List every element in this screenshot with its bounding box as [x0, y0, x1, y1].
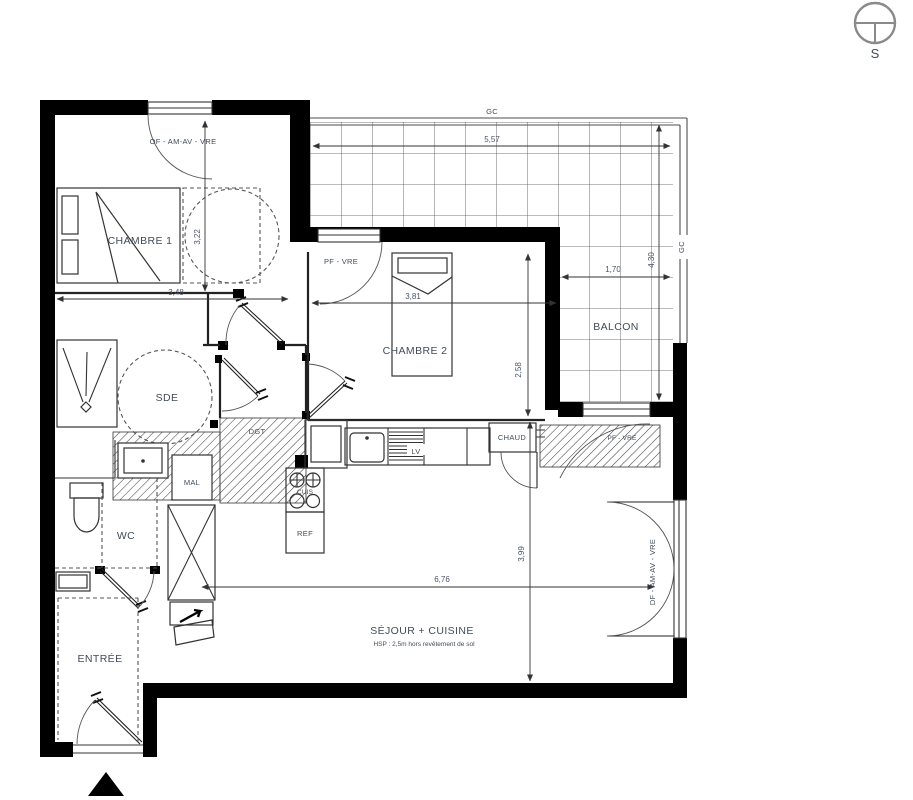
tall-unit-inner — [311, 426, 341, 462]
balcony-door-tiled-floor — [540, 425, 660, 467]
chambre1-label: CHAMBRE 1 — [108, 235, 173, 247]
wall-chambre2-east — [545, 242, 560, 410]
dim-chambre1-width: 3,48 — [168, 288, 184, 297]
wall-balcony-south-b — [650, 402, 673, 417]
chambre2-window-label: PF - VRE — [324, 257, 358, 266]
dim-sejour-width: 6,76 — [434, 575, 450, 584]
dim-balcon-width: 5,57 — [484, 135, 500, 144]
balcony — [310, 118, 687, 402]
wall-kitchen-nib — [295, 455, 308, 468]
pillow — [62, 240, 78, 274]
hall-door-leaf — [242, 303, 284, 342]
chambre2-door-leaf — [308, 383, 347, 419]
french-door-swing-bottom — [607, 569, 674, 636]
dim-chambre1-depth: 3,22 — [193, 229, 202, 245]
burner — [307, 495, 320, 508]
floor-plan-drawing: CHAMBRE 1 CHAMBRE 2 SDE WC ENTRÉE SÉJOUR… — [0, 0, 913, 800]
entree-label: ENTRÉE — [78, 652, 123, 665]
washbasin-drain — [141, 459, 145, 463]
hall-door-swing — [226, 305, 240, 345]
entrance-door-leaf — [97, 698, 142, 742]
dim-sejour-depth: 3,99 — [517, 546, 526, 562]
chambre2-door-leaf — [306, 381, 345, 417]
sde-door-leaf — [222, 360, 258, 396]
toilet-bowl — [74, 498, 99, 532]
entree-items — [56, 505, 215, 796]
chaud-door-swing — [501, 452, 537, 488]
dgt-label: DGT — [249, 427, 266, 436]
chambre2-door-swing — [308, 364, 345, 381]
wall-balcony-west — [290, 100, 310, 242]
sde-door-tip — [256, 389, 268, 400]
wc-door-leaf — [102, 569, 140, 606]
direction-arrow — [180, 610, 200, 622]
guardrail-right-label: GC — [677, 241, 686, 253]
floor-plan: CHAMBRE 1 CHAMBRE 2 SDE WC ENTRÉE SÉJOUR… — [0, 0, 913, 800]
sde-door-swing — [222, 396, 258, 411]
dim-chambre2-width: 3,81 — [405, 292, 421, 301]
jamb — [210, 420, 218, 428]
wall-entree-bottom — [40, 742, 73, 757]
chambre2-door-tip — [343, 377, 355, 389]
jamb — [215, 355, 222, 363]
closet-cross — [168, 505, 215, 600]
bed-fold — [392, 276, 452, 294]
stove-label: CUIS — [297, 489, 314, 496]
guardrail-top-label: GC — [486, 107, 498, 116]
shelf-tilted — [174, 620, 214, 645]
wc-door-leaf — [100, 571, 138, 608]
chambre1-window-swing — [148, 115, 212, 179]
jamb — [233, 289, 244, 298]
shower-drain — [81, 402, 91, 412]
hall-door-tip — [236, 297, 248, 307]
wall-top-a — [40, 100, 148, 115]
sde-door-leaf — [224, 358, 260, 394]
chambre2-furniture — [392, 253, 452, 376]
sejour-note: HSP : 2,5m hors revêtement de sol — [373, 641, 475, 648]
balcon-label: BALCON — [593, 321, 639, 333]
entrance-door-leaf — [95, 700, 140, 744]
entrance-marker-triangle — [88, 772, 124, 796]
toilet-tank — [70, 483, 103, 498]
entrance-door-swing — [77, 700, 95, 744]
wall-balcony-south-a — [558, 402, 583, 417]
chambre1-window-label: OF - AM-AV - VRE — [150, 137, 217, 146]
dim-balcon-inner: 1,70 — [605, 265, 621, 274]
shower-spray — [63, 348, 111, 402]
wall-right-upper — [673, 343, 687, 500]
french-door-swing-top — [607, 502, 674, 569]
washing-machine-label: MAL — [184, 478, 200, 487]
sde-fixtures — [57, 340, 212, 500]
jamb — [150, 566, 160, 574]
dishwasher-label: LV — [411, 447, 420, 456]
hall-door-leaf — [240, 305, 282, 344]
balcony-door-label: PF - VRE — [607, 435, 637, 442]
compass-south-label: S — [871, 46, 880, 61]
wall-entree-column — [143, 683, 157, 757]
dim-chambre2-depth: 2,58 — [514, 362, 523, 378]
dim-balcon-depth: 4,30 — [647, 252, 656, 268]
fridge-label: REF — [297, 529, 313, 538]
chambre2-label: CHAMBRE 2 — [383, 345, 448, 357]
sde-label: SDE — [156, 392, 179, 404]
french-door-label: DF - AM-AV - VRE — [648, 539, 657, 605]
pillow — [398, 258, 447, 273]
wc-label: WC — [117, 530, 135, 542]
french-door — [674, 500, 686, 638]
wall-left — [40, 100, 55, 757]
chambre2-window-swing — [320, 242, 382, 304]
low-cabinet-inner — [59, 575, 87, 588]
sejour-label: SÉJOUR + CUISINE — [370, 624, 474, 637]
bed-single — [392, 253, 452, 376]
pillow — [62, 196, 78, 234]
faucet — [365, 436, 369, 440]
compass: S — [855, 3, 895, 61]
wall-bottom — [145, 683, 687, 698]
boiler-label: CHAUD — [498, 433, 526, 442]
